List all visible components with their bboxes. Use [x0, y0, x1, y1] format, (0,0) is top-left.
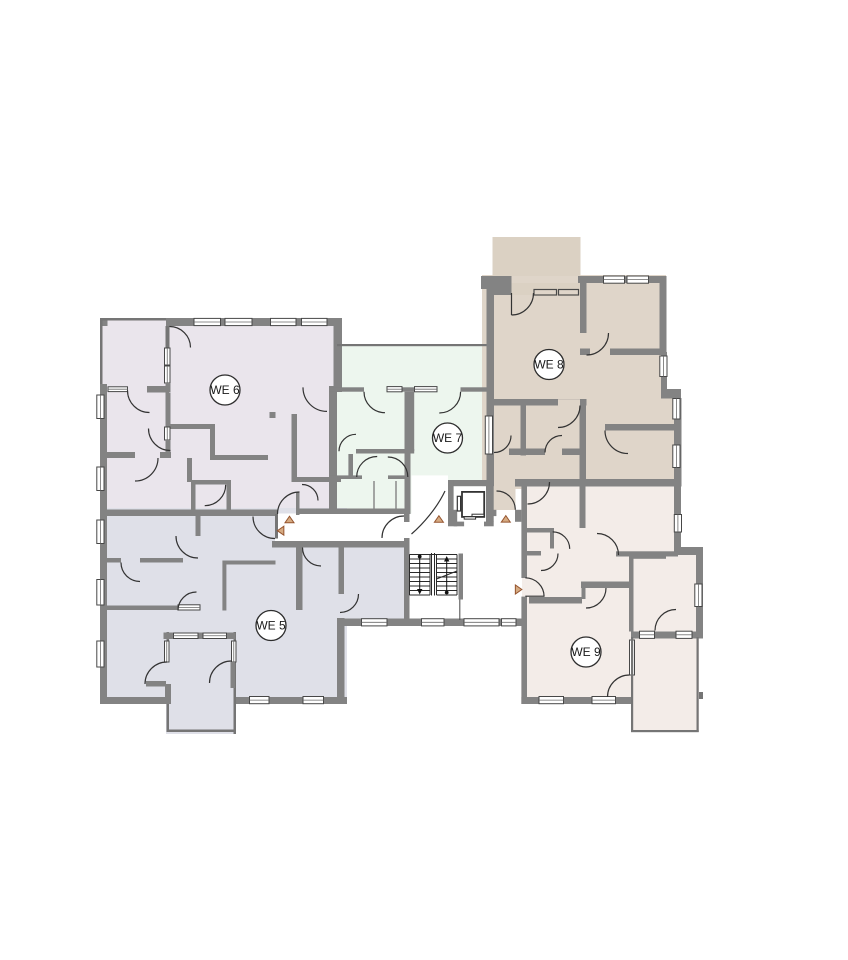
svg-text:WE 7: WE 7 — [433, 431, 463, 445]
svg-text:WE 9: WE 9 — [571, 645, 601, 659]
svg-text:WE 8: WE 8 — [534, 358, 564, 372]
svg-text:WE 6: WE 6 — [210, 383, 240, 397]
svg-text:WE 5: WE 5 — [256, 619, 286, 633]
